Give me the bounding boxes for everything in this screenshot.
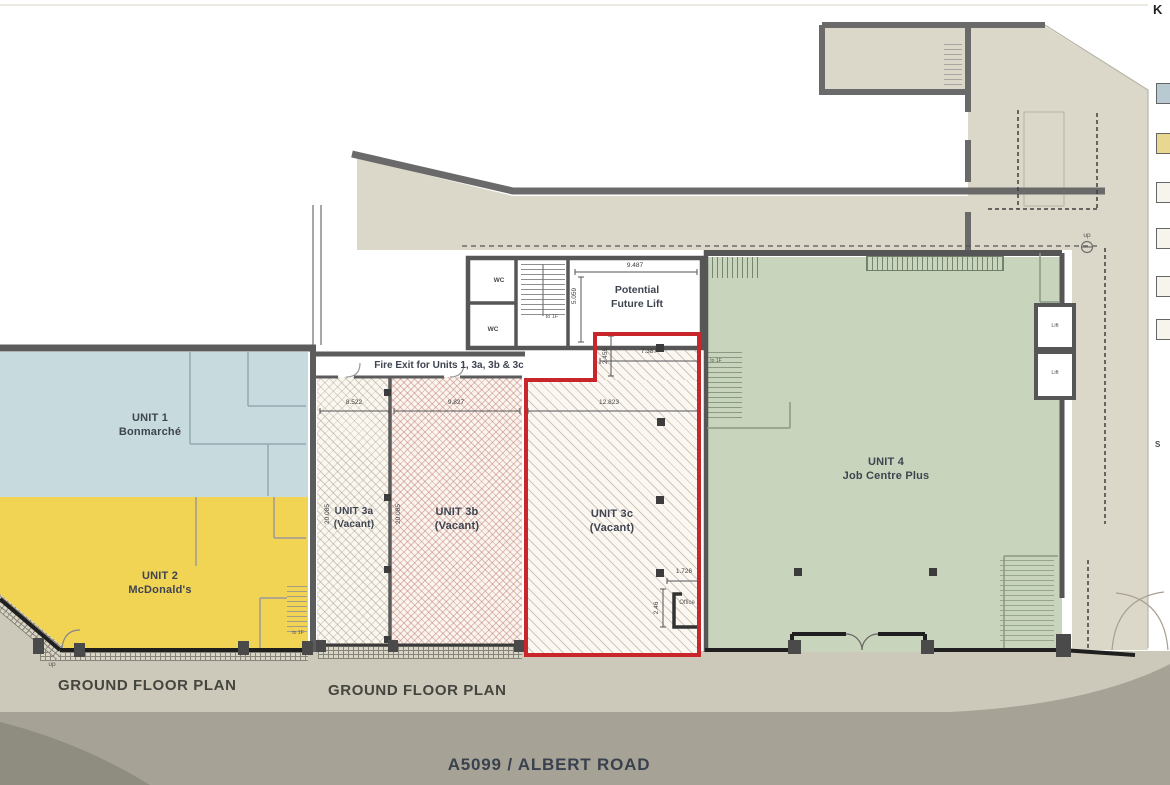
unit1-label: UNIT 1 Bonmarché — [119, 411, 181, 440]
dim-8522: 8.522 — [346, 399, 362, 407]
dim-9827: 9.827 — [448, 399, 464, 407]
unit3a-tenant: (Vacant) — [334, 518, 375, 531]
unit3a-name: UNIT 3a — [334, 505, 375, 518]
unit4-tenant: Job Centre Plus — [843, 469, 930, 483]
unit4-label: UNIT 4 Job Centre Plus — [843, 455, 930, 484]
column — [384, 494, 391, 501]
future-lift-line2: Future Lift — [611, 298, 663, 312]
unit4-partitions — [707, 253, 1060, 648]
unit1-name: UNIT 1 — [119, 411, 181, 425]
unit3c-label: UNIT 3c (Vacant) — [590, 507, 634, 536]
to-1f-unit2-label: to 1F — [292, 630, 303, 637]
unit2-tenant: McDonald's — [128, 583, 191, 597]
dim-20085-a: 20.085 — [324, 504, 332, 524]
unit3c-tenant: (Vacant) — [590, 521, 634, 535]
column — [929, 568, 937, 576]
upper-right-walls — [822, 25, 1045, 95]
column — [656, 569, 664, 577]
office-label: Office — [679, 600, 695, 608]
dim-line-1726 — [667, 578, 699, 584]
unit1-2-storefront — [0, 599, 308, 650]
walls-layer — [0, 0, 1170, 785]
unit4-entrance-doors — [846, 634, 878, 650]
dim-9487: 9.487 — [627, 262, 643, 270]
legend-swatch-unit3c — [1156, 276, 1170, 297]
unit1-partitions — [190, 352, 306, 496]
unit3b-label: UNIT 3b (Vacant) — [435, 505, 479, 534]
storefront-column — [514, 640, 524, 652]
storefront-column — [921, 640, 934, 654]
unit2-partitions — [196, 497, 306, 648]
lift-lower-label: Lift — [1051, 370, 1058, 377]
unit1-tenant: Bonmarché — [119, 425, 181, 439]
storefront-column — [33, 638, 44, 654]
dim-5059: 5.059 — [571, 288, 579, 304]
unit3b-name: UNIT 3b — [435, 505, 479, 519]
up-right-label: up — [1083, 232, 1090, 240]
storefront-column — [1056, 634, 1071, 657]
future-lift-line1: Potential — [611, 284, 663, 298]
dim-1726: 1.726 — [676, 568, 692, 576]
storefront-column — [302, 641, 313, 655]
column — [656, 344, 664, 352]
legend-swatch-unit2 — [1156, 133, 1170, 154]
up-left-label: up — [48, 661, 55, 669]
legend-key-title: K — [1153, 2, 1162, 17]
dim-7387: 7.387 — [641, 348, 657, 356]
unit3a-label: UNIT 3a (Vacant) — [334, 505, 375, 531]
dim-20085-b: 20.085 — [395, 504, 403, 524]
dim-line-8522 — [320, 408, 389, 414]
dim-12823: 12.823 — [599, 399, 619, 407]
dim-line-5059 — [578, 277, 584, 342]
column — [384, 389, 391, 396]
dim-line-12823 — [528, 408, 698, 414]
dim-246: 2.46 — [653, 602, 661, 615]
boundary-dashed-right — [1088, 248, 1105, 650]
to-1f-stair-label: to 1F — [546, 314, 559, 321]
unit3c-name: UNIT 3c — [590, 507, 634, 521]
legend-swatch-unit3b — [1156, 228, 1170, 249]
storefront-column — [74, 643, 85, 657]
unit2-label: UNIT 2 McDonald's — [128, 569, 191, 598]
column — [657, 418, 665, 426]
column — [656, 496, 664, 504]
storefront-column — [388, 640, 398, 652]
yard-gate-arcs — [1112, 592, 1168, 650]
future-lift-label: Potential Future Lift — [611, 284, 663, 311]
storefront-column — [238, 641, 249, 655]
legend-swatch-unit1 — [1156, 83, 1170, 104]
escape-passage-walls — [313, 205, 321, 345]
wc-upper-label: WC — [494, 277, 505, 285]
office-walls — [674, 594, 700, 627]
rear-wall-diagonal — [352, 154, 1105, 191]
legend-swatch-unit4 — [1156, 319, 1170, 340]
legend-swatch-unit3a — [1156, 182, 1170, 203]
to-1f-unit4-label: to 1F — [710, 358, 721, 365]
dim-2455: 2.455 — [602, 348, 610, 364]
dim-line-9827 — [394, 408, 520, 414]
floor-plan-canvas: UNIT 1 Bonmarché UNIT 2 McDonald's UNIT … — [0, 0, 1170, 785]
column — [384, 566, 391, 573]
column — [794, 568, 802, 576]
side-text-fragment: S — [1155, 440, 1160, 449]
unit2-name: UNIT 2 — [128, 569, 191, 583]
unit4-name: UNIT 4 — [843, 455, 930, 469]
unit3b-tenant: (Vacant) — [435, 519, 479, 533]
lift-upper-label: Lift — [1051, 323, 1058, 330]
storefront-column — [788, 640, 801, 654]
road-name: A5099 / ALBERT ROAD — [448, 754, 651, 776]
plan-title-left: GROUND FLOOR PLAN — [58, 677, 237, 694]
dim-line-7387 — [600, 358, 698, 364]
wc-lower-label: WC — [488, 326, 499, 334]
fire-exit-note: Fire Exit for Units 1, 3a, 3b & 3c — [374, 359, 524, 372]
plan-title-right: GROUND FLOOR PLAN — [328, 682, 507, 699]
stair-core-partitions — [468, 258, 568, 348]
storefront-column — [316, 640, 326, 652]
